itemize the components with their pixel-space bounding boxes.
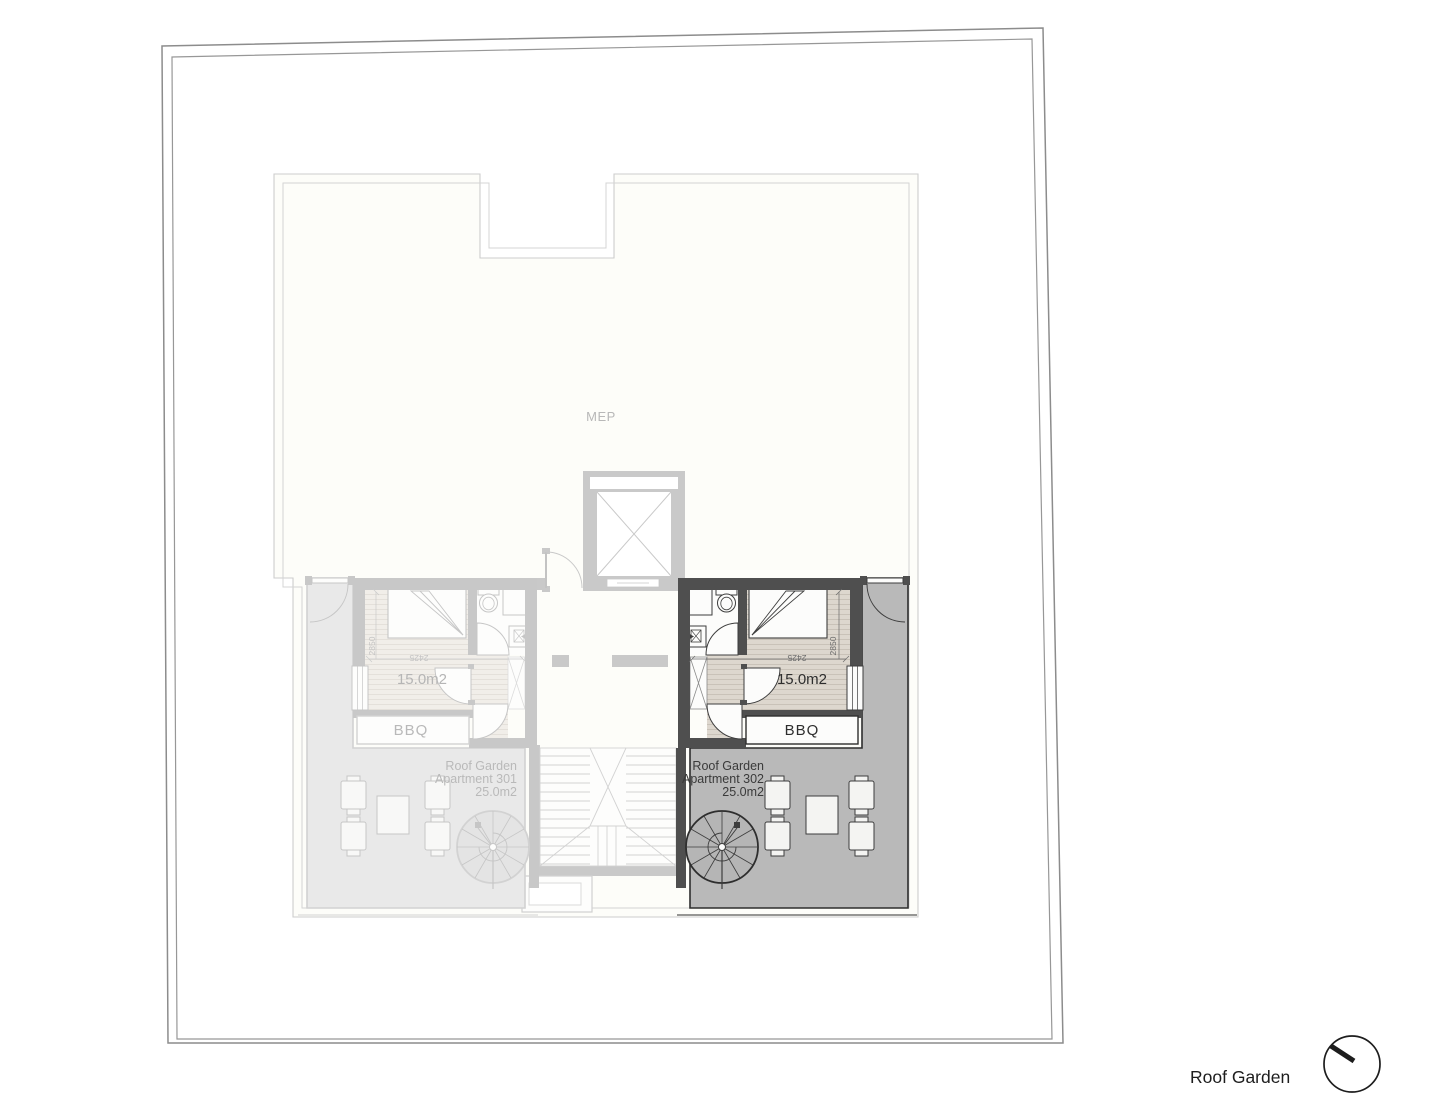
mep-label: MEP — [586, 409, 616, 424]
legend-title: Roof Garden — [1190, 1067, 1290, 1087]
apt302-garden-label-3: 25.0m2 — [722, 785, 764, 799]
apt301-garden-label-3: 25.0m2 — [475, 785, 517, 799]
apt302-room-area: 15.0m2 — [777, 671, 827, 688]
apt301-garden-label-2: Apartment 301 — [435, 772, 517, 786]
apt301-room-area: 15.0m2 — [397, 671, 447, 688]
apt301-dim-width: 2425 — [409, 653, 428, 663]
apt302-garden-label-2: Apartment 302 — [682, 772, 764, 786]
apt302-garden-label-1: Roof Garden — [692, 759, 764, 773]
apt302-bbq-label: BBQ — [785, 722, 820, 739]
orientation-marker-icon — [1324, 1036, 1380, 1092]
apt301-bbq-label: BBQ — [394, 722, 429, 739]
legend: Roof Garden — [1190, 1036, 1380, 1092]
elevator — [583, 471, 685, 591]
apt302-dim-depth: 2850 — [828, 636, 838, 655]
floor-plan-canvas: MEP Roof Garden Apartment 301 25.0m2 — [0, 0, 1448, 1112]
apt301-garden-label-1: Roof Garden — [445, 759, 517, 773]
apt301-dim-depth: 2850 — [367, 636, 377, 655]
apt302-dim-width: 2425 — [787, 653, 806, 663]
main-staircase — [530, 745, 678, 876]
